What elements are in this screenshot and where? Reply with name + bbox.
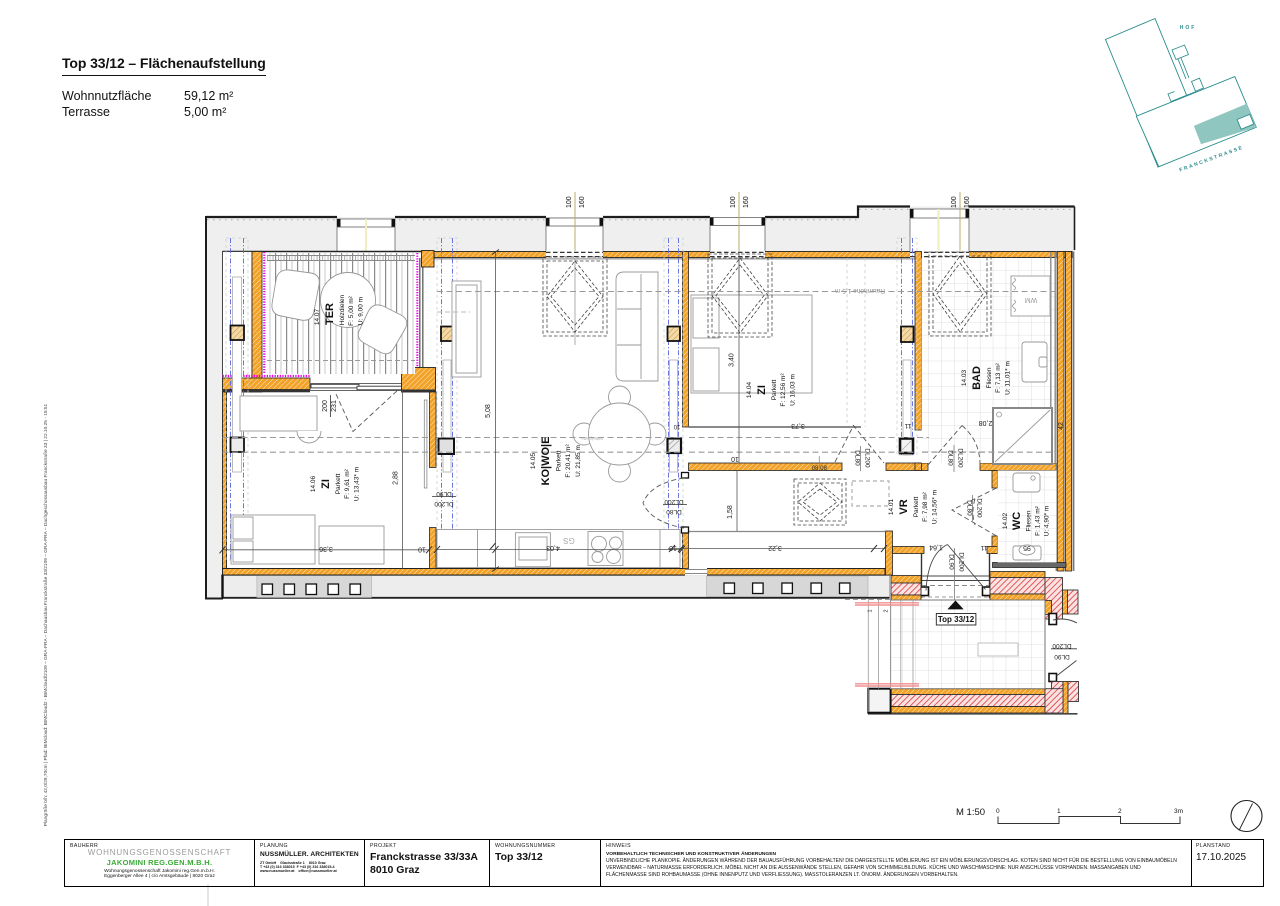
svg-text:2: 2 — [1118, 808, 1122, 815]
svg-text:0: 0 — [996, 808, 1000, 815]
svg-text:F: 5,00 m²: F: 5,00 m² — [348, 295, 355, 325]
svg-text:80: 80 — [820, 464, 827, 470]
svg-text:Plangröße b/h: 42,0/29,70cm |: Plangröße b/h: 42,0/29,70cm | Pfad: BIMc… — [43, 403, 49, 826]
svg-text:DL200: DL200 — [434, 500, 454, 507]
svg-text:11: 11 — [904, 422, 911, 429]
svg-text:Raumhöhe 1,5 m: Raumhöhe 1,5 m — [835, 287, 885, 294]
svg-text:DL90: DL90 — [1054, 653, 1070, 660]
svg-text:DL200: DL200 — [664, 498, 684, 505]
svg-text:F: 1,43 m²: F: 1,43 m² — [1035, 505, 1042, 535]
svg-text:DL80: DL80 — [666, 508, 682, 515]
svg-text:2,08: 2,08 — [979, 419, 993, 426]
svg-text:Parkett: Parkett — [771, 380, 778, 401]
svg-text:U: 13,43* m: U: 13,43* m — [354, 467, 361, 501]
svg-text:160: 160 — [579, 196, 586, 208]
svg-text:WM: WM — [1025, 296, 1038, 303]
svg-text:F: 12,56 m²: F: 12,56 m² — [780, 373, 787, 407]
svg-text:1,58: 1,58 — [727, 505, 734, 519]
svg-text:231: 231 — [331, 400, 338, 412]
svg-text:14.06: 14.06 — [310, 475, 317, 492]
svg-text:DL90: DL90 — [948, 554, 955, 570]
svg-text:10: 10 — [731, 455, 739, 462]
svg-text:100: 100 — [951, 196, 958, 208]
svg-text:U: 14,56* m: U: 14,56* m — [932, 490, 939, 524]
svg-text:ZI: ZI — [756, 385, 768, 395]
svg-text:Mittelplatte: Mittelplatte — [581, 436, 603, 441]
svg-text:Fliesen: Fliesen — [1026, 510, 1033, 531]
svg-text:1: 1 — [868, 609, 874, 612]
svg-text:ZI: ZI — [320, 479, 332, 489]
svg-text:11: 11 — [980, 544, 987, 551]
svg-text:10: 10 — [673, 423, 680, 429]
svg-text:U: 21,85 m: U: 21,85 m — [575, 445, 582, 477]
svg-text:DL80: DL80 — [854, 450, 861, 466]
svg-text:80: 80 — [811, 464, 818, 470]
svg-text:VR: VR — [898, 499, 910, 514]
svg-text:14.01: 14.01 — [888, 498, 895, 515]
svg-text:2: 2 — [884, 609, 890, 612]
svg-text:DL90: DL90 — [436, 490, 452, 497]
svg-text:F: 9,61 m²: F: 9,61 m² — [344, 468, 351, 498]
svg-text:KO|WO|E: KO|WO|E — [540, 437, 552, 486]
svg-text:3m: 3m — [1174, 808, 1183, 815]
svg-text:14.03: 14.03 — [961, 369, 968, 386]
svg-text:160: 160 — [964, 196, 971, 208]
svg-text:DL200: DL200 — [1052, 642, 1072, 649]
svg-text:100: 100 — [566, 196, 573, 208]
svg-text:160: 160 — [743, 196, 750, 208]
svg-text:Top 33/12: Top 33/12 — [938, 615, 975, 624]
svg-text:DL200: DL200 — [864, 448, 871, 468]
svg-text:DL200: DL200 — [976, 498, 983, 518]
svg-text:M 1:50: M 1:50 — [956, 807, 985, 818]
svg-text:14.07: 14.07 — [314, 308, 321, 325]
svg-text:F: 7,13 m²: F: 7,13 m² — [995, 362, 1002, 392]
svg-text:U: 4,90* m: U: 4,90* m — [1044, 506, 1051, 537]
svg-text:DL200: DL200 — [957, 448, 964, 468]
svg-text:1: 1 — [1057, 808, 1061, 815]
svg-text:14.02: 14.02 — [1002, 512, 1009, 529]
svg-text:HOF: HOF — [1180, 25, 1197, 31]
svg-text:42: 42 — [1058, 422, 1065, 430]
svg-text:3,40: 3,40 — [729, 353, 736, 367]
svg-text:Holzdielen: Holzdielen — [339, 294, 346, 325]
svg-text:Parkett: Parkett — [913, 497, 920, 518]
svg-text:10: 10 — [418, 546, 426, 553]
svg-text:95: 95 — [1023, 544, 1031, 551]
svg-text:Parkett: Parkett — [335, 474, 342, 495]
svg-text:3,36: 3,36 — [319, 545, 333, 552]
svg-text:5,08: 5,08 — [485, 404, 492, 418]
svg-text:BAD: BAD — [971, 366, 983, 390]
svg-text:DL200: DL200 — [958, 552, 965, 572]
svg-text:U: 9,00 m: U: 9,00 m — [358, 297, 365, 325]
svg-text:100: 100 — [730, 196, 737, 208]
svg-text:DL80: DL80 — [946, 450, 953, 466]
svg-text:F: 20,41 m²: F: 20,41 m² — [565, 444, 572, 478]
svg-text:Fliesen: Fliesen — [986, 367, 993, 388]
svg-text:14.05: 14.05 — [530, 452, 537, 469]
svg-text:GS: GS — [563, 536, 575, 545]
svg-text:WC: WC — [1011, 512, 1023, 530]
svg-text:4,03: 4,03 — [546, 544, 560, 551]
svg-text:3,73: 3,73 — [791, 422, 805, 429]
svg-text:U: 16,03 m: U: 16,03 m — [790, 374, 797, 406]
svg-text:200: 200 — [322, 400, 329, 412]
svg-text:U: 11,01* m: U: 11,01* m — [1005, 361, 1012, 395]
svg-text:14.04: 14.04 — [746, 381, 753, 398]
svg-text:TER: TER — [324, 303, 336, 325]
svg-text:3,22: 3,22 — [768, 544, 782, 551]
svg-text:Parkett: Parkett — [556, 451, 563, 472]
svg-text:F: 7,98 m²: F: 7,98 m² — [922, 491, 929, 521]
svg-text:2,88: 2,88 — [393, 471, 400, 485]
